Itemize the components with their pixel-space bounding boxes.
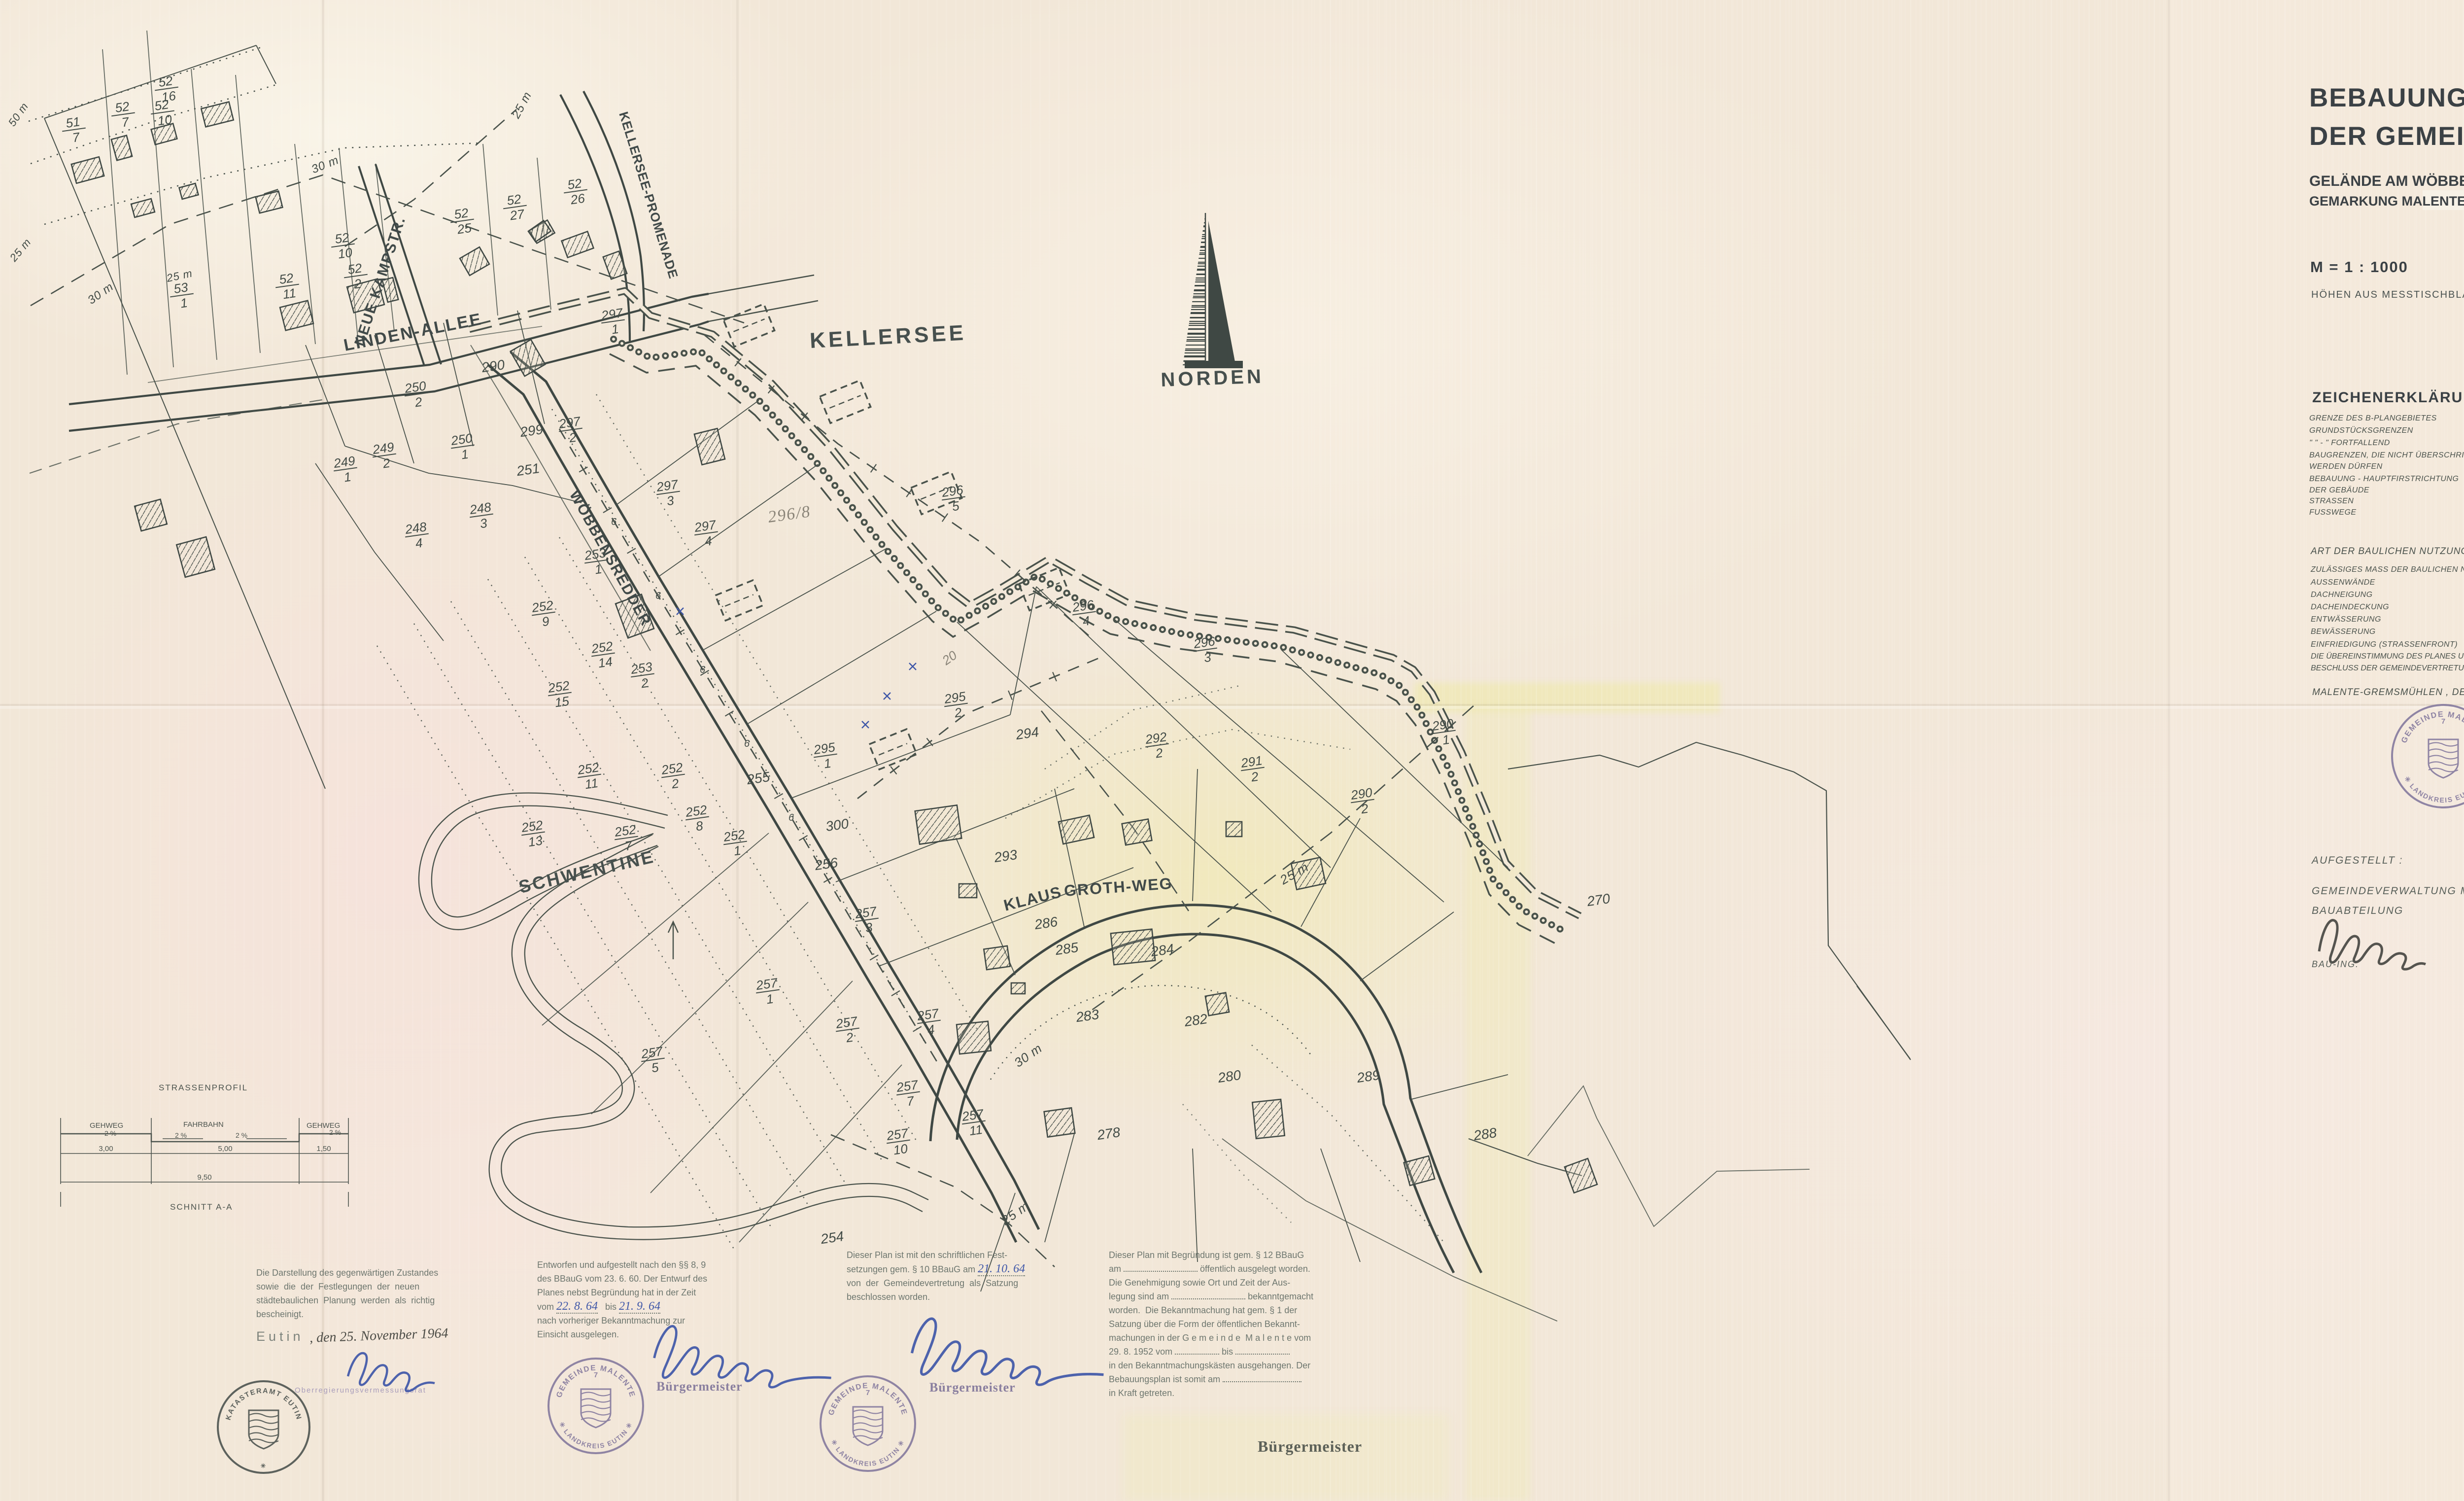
svg-text:255: 255 bbox=[745, 769, 771, 787]
svg-text:11: 11 bbox=[282, 285, 297, 302]
svg-text:ZEICHENERKLÄRUNG :: ZEICHENERKLÄRUNG : bbox=[2312, 389, 2464, 406]
svg-text:7: 7 bbox=[866, 1389, 870, 1397]
svg-text:2 %: 2 % bbox=[236, 1131, 247, 1139]
svg-text:20: 20 bbox=[939, 647, 959, 668]
svg-text:285: 285 bbox=[1054, 940, 1079, 958]
svg-text:251: 251 bbox=[515, 460, 541, 479]
svg-text:2: 2 bbox=[381, 455, 391, 471]
svg-text:51: 51 bbox=[65, 114, 81, 131]
svg-text:EINFRIEDIGUNG (STRASSENFRONT): EINFRIEDIGUNG (STRASSENFRONT) bbox=[2311, 640, 2458, 649]
svg-text:DIE ÜBEREINSTIMMUNG DES PLANES: DIE ÜBEREINSTIMMUNG DES PLANES UND DES T… bbox=[2311, 652, 2464, 661]
svg-text:HÖHEN AUS MESSTISCHBLATT 1 :: HÖHEN AUS MESSTISCHBLATT 1 : 25 000 bbox=[2311, 289, 2464, 300]
svg-text:3: 3 bbox=[1203, 650, 1212, 665]
svg-text:1: 1 bbox=[343, 469, 352, 485]
svg-text:GRENZE DES B-PLANGEBIETES: GRENZE DES B-PLANGEBIETES bbox=[2309, 414, 2437, 422]
svg-text:7: 7 bbox=[906, 1093, 916, 1109]
svg-text:BAUGRENZEN, DIE NICHT ÜBERSCHR: BAUGRENZEN, DIE NICHT ÜBERSCHRITTEN bbox=[2309, 451, 2464, 459]
svg-text:DER GEBÄUDE: DER GEBÄUDE bbox=[2309, 486, 2369, 494]
svg-text:282: 282 bbox=[1183, 1011, 1208, 1029]
svg-text:4: 4 bbox=[1082, 613, 1091, 629]
svg-text:9: 9 bbox=[541, 614, 550, 629]
svg-text:7: 7 bbox=[2441, 717, 2445, 726]
svg-text:13: 13 bbox=[527, 833, 544, 850]
svg-text:2 %: 2 % bbox=[104, 1129, 116, 1137]
svg-text:MALENTE-GREMSMÜHLEN , DEM: MALENTE-GREMSMÜHLEN , DEM bbox=[2312, 687, 2464, 698]
svg-text:2 %: 2 % bbox=[329, 1128, 341, 1136]
svg-text:KATASTERAMT EUTIN: KATASTERAMT EUTIN bbox=[224, 1387, 303, 1421]
svg-text:289: 289 bbox=[1355, 1067, 1381, 1085]
svg-text:" " - ": " " - " FORTFALLEND bbox=[2309, 439, 2390, 447]
svg-text:4: 4 bbox=[704, 533, 713, 549]
svg-text:FUSSWEGE: FUSSWEGE bbox=[2309, 508, 2357, 517]
svg-text:GEHWEG: GEHWEG bbox=[90, 1121, 123, 1130]
svg-text:52: 52 bbox=[114, 99, 131, 115]
svg-text:1: 1 bbox=[823, 756, 832, 771]
svg-text:3: 3 bbox=[479, 516, 488, 531]
svg-text:283: 283 bbox=[1074, 1007, 1100, 1025]
svg-text:5,00: 5,00 bbox=[218, 1145, 232, 1153]
svg-text:BAUABTEILUNG: BAUABTEILUNG bbox=[2312, 905, 2403, 916]
svg-text:2: 2 bbox=[1360, 801, 1369, 817]
svg-text:25 m: 25 m bbox=[509, 89, 534, 121]
svg-text:1: 1 bbox=[179, 295, 189, 311]
svg-text:26: 26 bbox=[569, 191, 586, 208]
svg-text:6: 6 bbox=[744, 738, 750, 749]
svg-text:3,00: 3,00 bbox=[99, 1145, 113, 1153]
svg-text:52: 52 bbox=[347, 260, 363, 277]
svg-text:50 m: 50 m bbox=[6, 100, 31, 129]
svg-text:NORDEN: NORDEN bbox=[1161, 366, 1265, 391]
svg-text:1: 1 bbox=[611, 321, 620, 337]
svg-text:5: 5 bbox=[650, 1060, 660, 1076]
svg-text:2: 2 bbox=[845, 1030, 855, 1046]
svg-text:BEWÄSSERUNG: BEWÄSSERUNG bbox=[2311, 627, 2376, 636]
svg-text:STRASSEN: STRASSEN bbox=[2309, 497, 2354, 505]
svg-text:25 m: 25 m bbox=[7, 236, 34, 264]
svg-text:25 m: 25 m bbox=[165, 267, 194, 284]
svg-text:KLAUS: KLAUS bbox=[1002, 883, 1063, 914]
svg-text:1: 1 bbox=[733, 843, 742, 859]
svg-text:6: 6 bbox=[655, 591, 661, 601]
svg-text:ART DER BAULICHEN NUTZUNG :: ART DER BAULICHEN NUTZUNG : bbox=[2310, 546, 2464, 557]
svg-text:52: 52 bbox=[334, 230, 350, 246]
svg-text:WERDEN DÜRFEN: WERDEN DÜRFEN bbox=[2309, 462, 2383, 471]
svg-text:294: 294 bbox=[1014, 724, 1040, 742]
svg-text:2 %: 2 % bbox=[175, 1131, 187, 1139]
svg-text:DER GEMEINDE MALENTE: DER GEMEINDE MALENTE bbox=[2309, 122, 2464, 151]
svg-text:2: 2 bbox=[670, 776, 680, 792]
svg-text:3: 3 bbox=[666, 493, 675, 509]
svg-text:11: 11 bbox=[584, 775, 599, 792]
svg-text:280: 280 bbox=[1216, 1067, 1242, 1085]
svg-text:KELLERSEE: KELLERSEE bbox=[809, 320, 967, 353]
svg-text:M = 1 : 1000: M = 1 : 1000 bbox=[2310, 258, 2408, 276]
svg-text:2: 2 bbox=[1154, 745, 1164, 761]
svg-text:30 m: 30 m bbox=[309, 153, 341, 176]
svg-text:10: 10 bbox=[892, 1141, 909, 1158]
svg-text:270: 270 bbox=[1585, 891, 1611, 909]
svg-text:27: 27 bbox=[509, 206, 526, 223]
svg-text:✳: ✳ bbox=[261, 1463, 267, 1469]
svg-text:2: 2 bbox=[568, 430, 578, 446]
svg-text:52: 52 bbox=[278, 270, 295, 287]
svg-text:6: 6 bbox=[788, 812, 794, 823]
svg-text:52: 52 bbox=[567, 175, 583, 192]
svg-text:1,50: 1,50 bbox=[316, 1145, 331, 1153]
svg-text:BEBAUUNG - HAUPTFIRSTRICHTUNG: BEBAUUNG - HAUPTFIRSTRICHTUNG bbox=[2309, 475, 2459, 483]
svg-text:2: 2 bbox=[413, 394, 423, 410]
svg-text:10: 10 bbox=[337, 245, 353, 262]
svg-text:ZULÄSSIGES MASS DER BAULICHEN: ZULÄSSIGES MASS DER BAULICHEN NUTZUNG bbox=[2310, 565, 2464, 574]
svg-text:ENTWÄSSERUNG: ENTWÄSSERUNG bbox=[2311, 615, 2381, 624]
svg-text:9,50: 9,50 bbox=[197, 1173, 211, 1182]
svg-text:STRASSENPROFIL: STRASSENPROFIL bbox=[159, 1083, 248, 1092]
svg-text:DACHNEIGUNG: DACHNEIGUNG bbox=[2311, 591, 2373, 599]
svg-text:296/8: 296/8 bbox=[767, 502, 812, 526]
svg-text:2: 2 bbox=[1250, 769, 1260, 785]
svg-text:7: 7 bbox=[71, 129, 81, 145]
svg-text:1: 1 bbox=[594, 561, 603, 577]
svg-text:2: 2 bbox=[953, 705, 963, 721]
svg-text:286: 286 bbox=[1033, 914, 1059, 932]
svg-text:2: 2 bbox=[640, 675, 650, 691]
svg-text:11: 11 bbox=[968, 1122, 984, 1138]
svg-text:FAHRBAHN: FAHRBAHN bbox=[183, 1120, 224, 1129]
svg-text:1: 1 bbox=[765, 991, 775, 1007]
svg-text:7: 7 bbox=[121, 114, 131, 130]
svg-text:5: 5 bbox=[951, 498, 960, 514]
svg-text:GEMEINDEVERWALTUNG MALENTE: GEMEINDEVERWALTUNG MALENTE bbox=[2312, 885, 2464, 897]
svg-text:4: 4 bbox=[414, 535, 424, 551]
svg-text:52: 52 bbox=[453, 205, 470, 222]
svg-text:6: 6 bbox=[700, 664, 706, 675]
svg-text:GRUNDSTÜCKSGRENZEN: GRUNDSTÜCKSGRENZEN bbox=[2309, 426, 2413, 435]
svg-text:30 m: 30 m bbox=[1011, 1041, 1045, 1070]
svg-text:6: 6 bbox=[611, 517, 617, 527]
svg-text:7: 7 bbox=[594, 1371, 598, 1379]
svg-text:SCHNITT A-A: SCHNITT A-A bbox=[170, 1202, 233, 1212]
svg-text:290: 290 bbox=[480, 357, 506, 375]
svg-text:✳ LANDKREIS EUTIN ✳: ✳ LANDKREIS EUTIN ✳ bbox=[2403, 775, 2464, 804]
svg-text:300: 300 bbox=[824, 816, 850, 834]
svg-text:1: 1 bbox=[460, 447, 470, 462]
svg-text:3: 3 bbox=[864, 920, 874, 936]
svg-text:293: 293 bbox=[992, 847, 1018, 865]
svg-text:DACHEINDECKUNG: DACHEINDECKUNG bbox=[2311, 603, 2389, 611]
svg-text:278: 278 bbox=[1095, 1124, 1121, 1143]
svg-text:52: 52 bbox=[154, 97, 170, 113]
svg-text:1: 1 bbox=[1441, 732, 1451, 748]
svg-text:254: 254 bbox=[819, 1228, 845, 1247]
svg-text:GELÄNDE AM WÖBBENSREDDER (GRUN: GELÄNDE AM WÖBBENSREDDER (GRUNDSTÜCK HIN… bbox=[2309, 173, 2464, 189]
svg-text:30 m: 30 m bbox=[85, 280, 116, 307]
svg-text:25: 25 bbox=[456, 220, 473, 237]
svg-text:15: 15 bbox=[554, 694, 570, 710]
svg-text:288: 288 bbox=[1472, 1125, 1498, 1143]
svg-text:52: 52 bbox=[506, 191, 522, 208]
svg-text:4: 4 bbox=[926, 1022, 936, 1038]
svg-text:BESCHLUSS DER GEMEINDEVERTRETU: BESCHLUSS DER GEMEINDEVERTRETUNG VOM WIR… bbox=[2311, 664, 2464, 672]
svg-text:SCHWENTINE: SCHWENTINE bbox=[517, 846, 657, 897]
svg-text:52: 52 bbox=[158, 73, 174, 90]
svg-text:10: 10 bbox=[157, 112, 173, 129]
svg-text:GROTH-WEG: GROTH-WEG bbox=[1063, 874, 1173, 900]
svg-text:284: 284 bbox=[1149, 941, 1175, 959]
svg-text:299: 299 bbox=[518, 421, 544, 440]
svg-text:14: 14 bbox=[597, 654, 614, 671]
svg-text:GEMARKUNG MALENTE ,: GEMARKUNG MALENTE , bbox=[2309, 194, 2464, 209]
svg-text:AUFGESTELLT :: AUFGESTELLT : bbox=[2311, 855, 2403, 866]
svg-text:AUSSENWÄNDE: AUSSENWÄNDE bbox=[2310, 578, 2375, 587]
svg-text:256: 256 bbox=[813, 855, 839, 873]
svg-text:8: 8 bbox=[695, 818, 704, 834]
svg-text:BEBAUUNGSPLAN NR. 8: BEBAUUNGSPLAN NR. 8 bbox=[2309, 83, 2464, 112]
svg-text:BAU-ING.: BAU-ING. bbox=[2312, 959, 2359, 969]
